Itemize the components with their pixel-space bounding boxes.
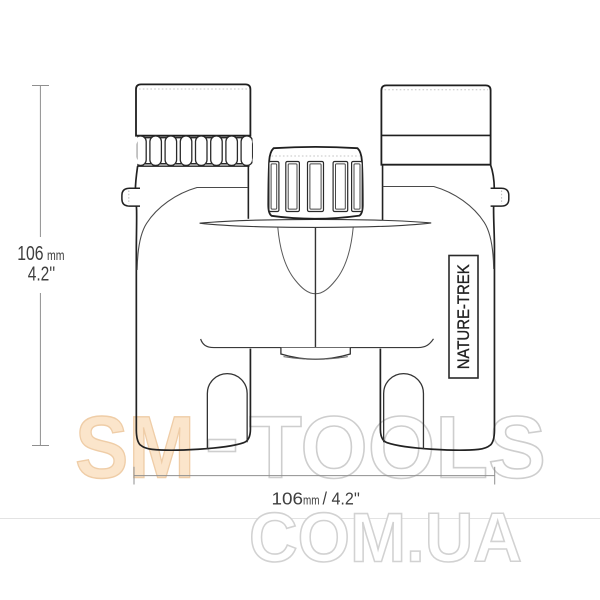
svg-text:COM.UA: COM.UA: [249, 499, 522, 577]
svg-text:/ 4.2'': / 4.2'': [323, 489, 361, 509]
svg-text:106: 106: [17, 243, 43, 265]
svg-text:NATURE-TREK: NATURE-TREK: [454, 264, 473, 370]
svg-text:mm: mm: [47, 248, 65, 263]
svg-text:mm: mm: [303, 494, 320, 508]
svg-text:4.2'': 4.2'': [28, 263, 56, 285]
svg-text:SM: SM: [75, 398, 195, 497]
svg-text:TOOLS: TOOLS: [249, 398, 546, 497]
svg-text:106: 106: [272, 489, 304, 509]
